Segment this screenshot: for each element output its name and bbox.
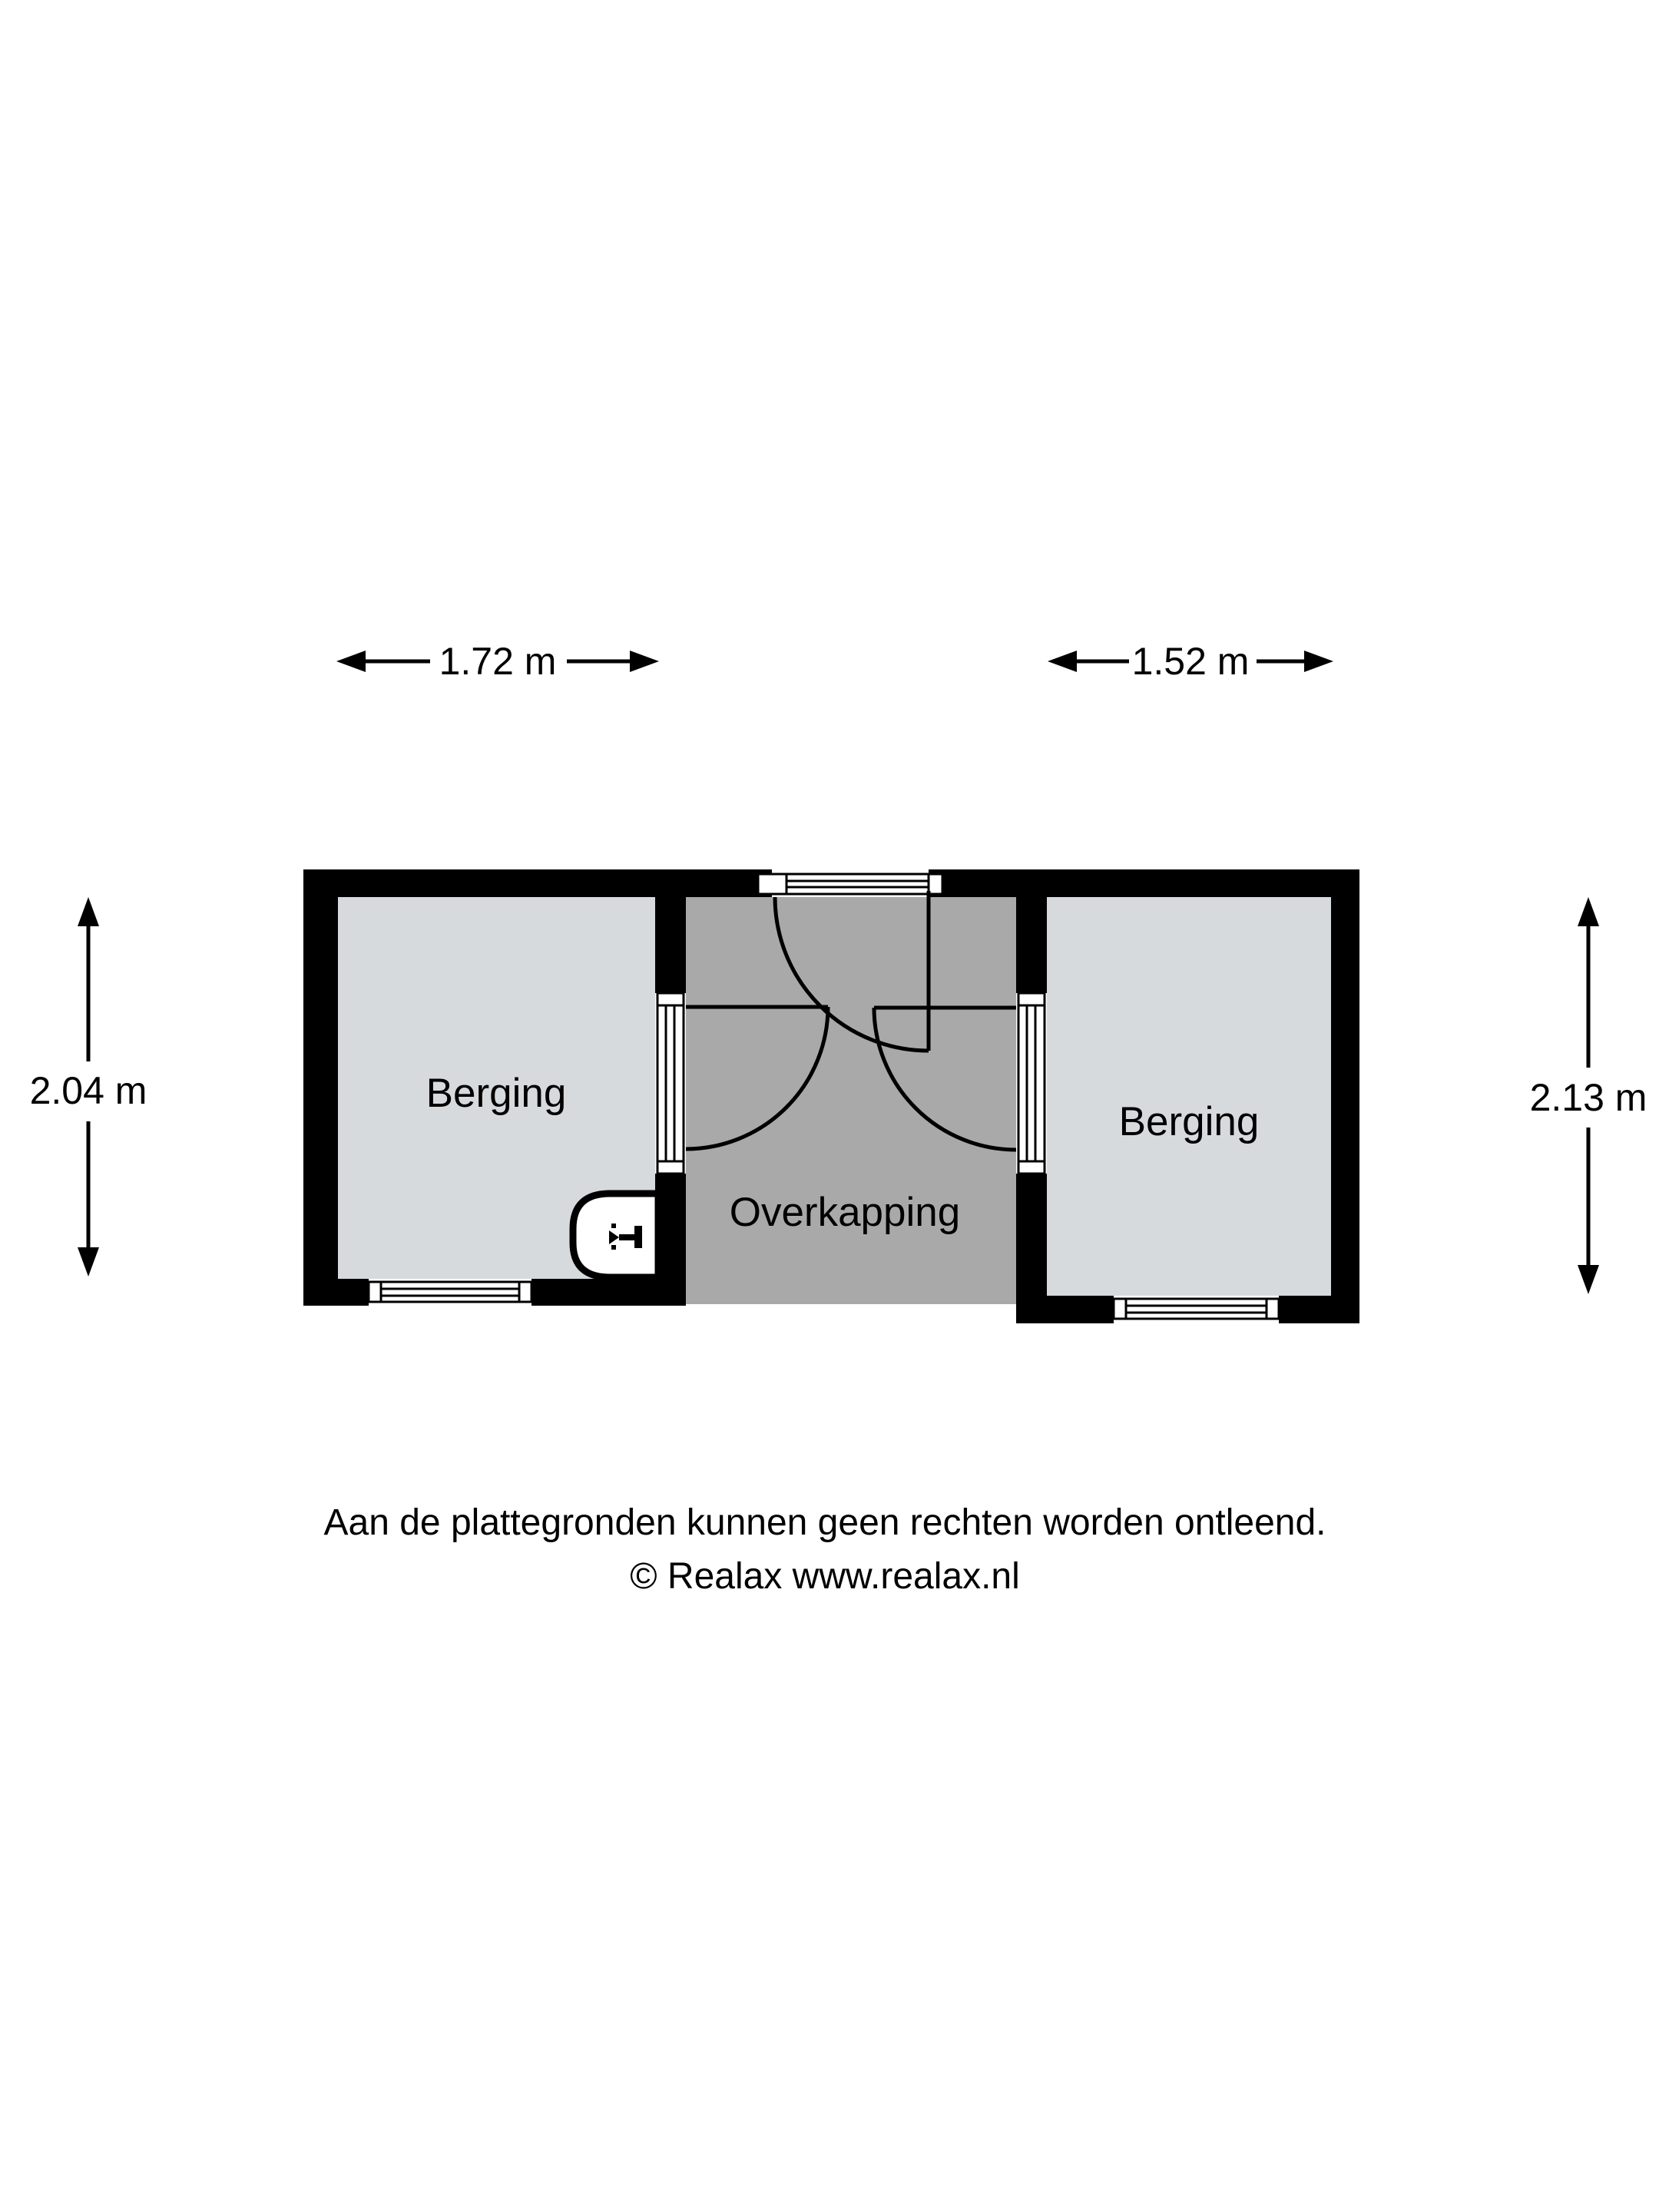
footer: Aan de plattegronden kunnen geen rechten… [323,1502,1326,1597]
copyright-text: © Realax www.realax.nl [630,1556,1020,1597]
arrowhead-left-icon [336,651,366,672]
room-label-left: Berging [426,1071,567,1116]
dimension-value: 1.72 m [439,640,557,683]
window-left-room-bottom [369,1282,531,1302]
arrowhead-right-icon [630,651,659,672]
fixture [573,1194,658,1277]
window-top-entrance [758,874,942,894]
arrowhead-down-icon [1578,1265,1599,1294]
dimension-value: 1.52 m [1132,640,1250,683]
dimension-left: 2.04 m [30,897,147,1277]
room-right-floor [1047,897,1331,1296]
window-frame [657,993,684,1174]
arrowhead-left-icon [1048,651,1077,672]
window-left-partition [657,993,684,1174]
window-frame [1114,1299,1279,1319]
window-right-partition [1018,993,1045,1174]
floorplan-canvas: Berging Overkapping Berging 1.72 m 1.52 … [0,0,1659,2212]
arrowhead-down-icon [78,1247,99,1277]
dimension-value: 2.04 m [30,1069,147,1112]
window-frame [369,1282,531,1302]
arrowhead-up-icon [1578,897,1599,926]
dimension-top-left: 1.72 m [336,640,659,683]
dimension-right: 2.13 m [1530,897,1647,1294]
floorplan-page: Berging Overkapping Berging 1.72 m 1.52 … [0,0,1659,2212]
arrowhead-right-icon [1304,651,1333,672]
room-label-right: Berging [1119,1099,1260,1144]
room-label-canopy: Overkapping [730,1190,961,1235]
arrowhead-up-icon [78,897,99,926]
dimension-value: 2.13 m [1530,1076,1647,1119]
window-frame [1018,993,1045,1174]
dimension-top-right: 1.52 m [1048,640,1333,683]
room-canopy-floor [686,897,1016,1304]
window-right-room-bottom [1114,1299,1279,1319]
disclaimer-text: Aan de plattegronden kunnen geen rechten… [323,1502,1326,1543]
